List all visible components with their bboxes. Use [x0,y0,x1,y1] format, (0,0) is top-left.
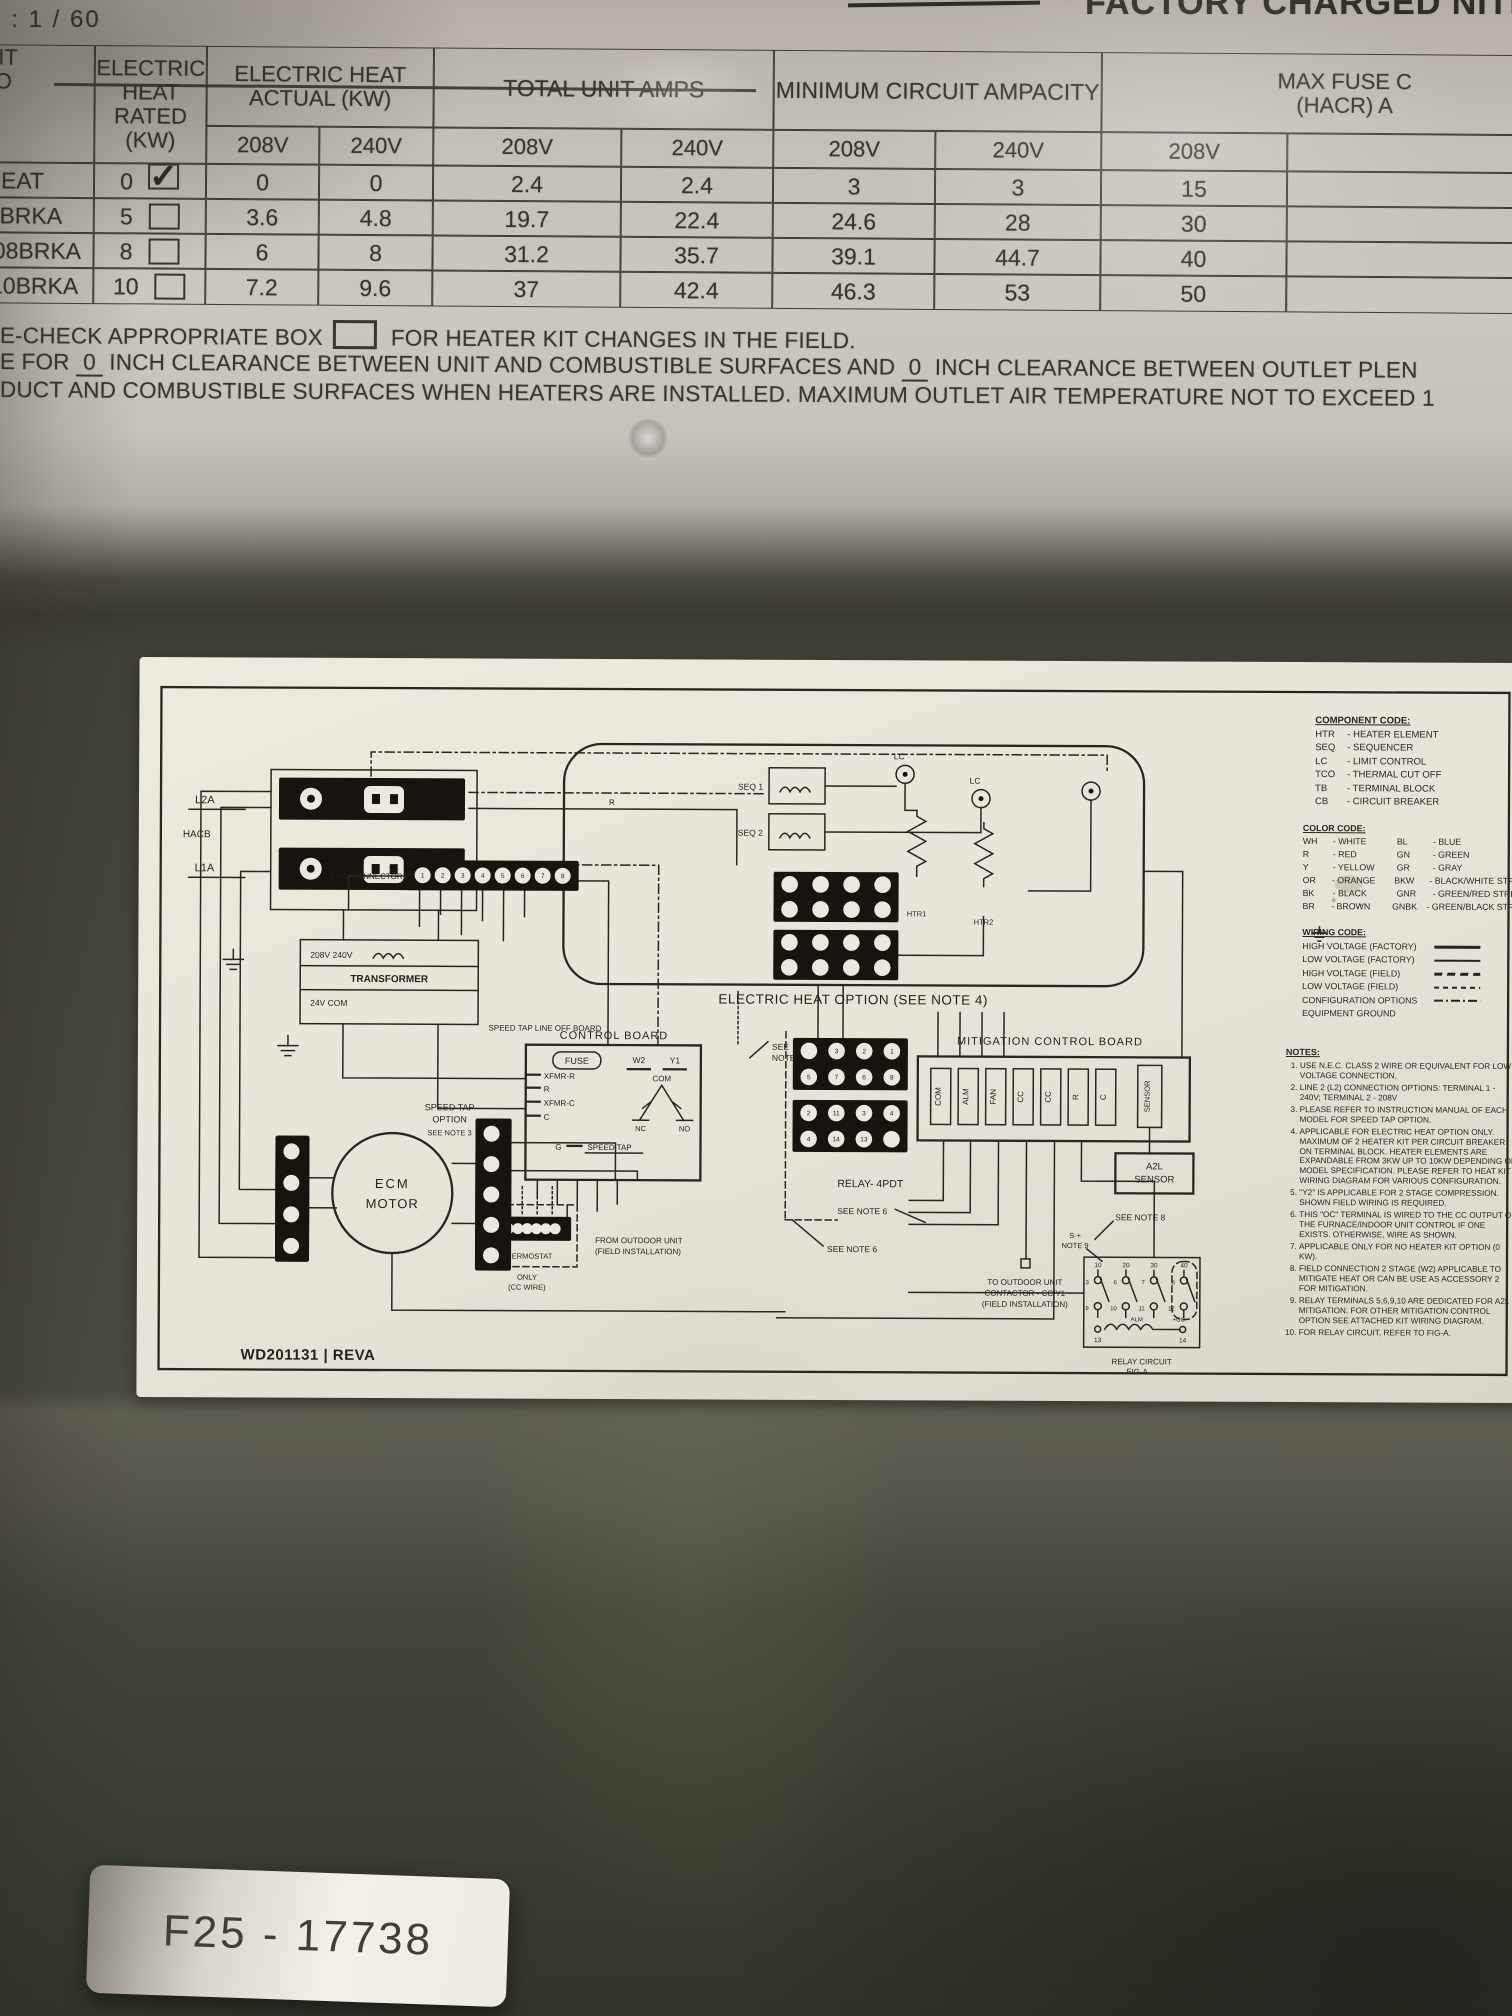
component-code-item: TCO- THERMAL CUT OFF [1315,768,1512,782]
svg-text:FAN: FAN [989,1089,998,1105]
relay-circuit-fig-a: 13 14 ALM +CC RELAY CIRCUIT FIG-A [1083,1257,1200,1377]
svg-text:LC: LC [894,751,905,761]
component-code-item: TB- TERMINAL BLOCK [1315,782,1512,796]
table-cell: 19.7 [433,200,621,236]
color-code-item: Y- YELLOWGR- GRAY [1303,861,1512,875]
component-code-item: HTR- HEATER ELEMENT [1315,728,1512,742]
heat-terminal-block-a [773,872,898,923]
table-cell: 10 [93,268,205,305]
table-cell: 31.2 [432,235,620,271]
color-code-item: BR- BROWNGNBK- GREEN/BLACK STRIPE [1303,900,1512,914]
svg-text:208V 240V: 208V 240V [310,950,352,960]
color-code-legend: COLOR CODE: WH- WHITEBL- BLUER- REDGN- G… [1303,822,1512,914]
svg-text:NOTE 9: NOTE 9 [1061,1241,1088,1250]
svg-text:6: 6 [521,873,525,880]
svg-text:SEE NOTE 8: SEE NOTE 8 [1115,1212,1165,1222]
table-cell: EC HEAT [0,162,94,198]
note-item: USE N.E.C. CLASS 2 WIRE OR EQUIVALENT FO… [1300,1061,1512,1082]
svg-text:SEE NOTE 3: SEE NOTE 3 [427,1128,471,1137]
svg-text:11: 11 [833,1110,840,1117]
svg-text:24V COM: 24V COM [310,998,347,1008]
table-cell: 22.4 [621,202,773,238]
svg-text:8: 8 [1172,1280,1176,1286]
check-box-instruction: E-CHECK APPROPRIATE BOXFOR HEATER KIT CH… [0,318,856,354]
table-cell [1287,171,1512,208]
svg-text:SENSOR: SENSOR [1143,1080,1152,1112]
svg-text:ONLY: ONLY [517,1273,537,1282]
table-cell: A505BRKA [0,197,94,233]
svg-text:6: 6 [862,1074,866,1081]
svg-text:SEQ 1: SEQ 1 [738,782,763,792]
svg-text:4: 4 [890,1111,894,1118]
sticker-code: F25 - 17738 [162,1906,434,1965]
checkbox-unchecked[interactable] [148,238,179,264]
table-cell: 0✓ [94,163,206,199]
svg-text:CONTACTOR - CC/Y1: CONTACTOR - CC/Y1 [985,1289,1066,1298]
svg-text:SEQ 2: SEQ 2 [738,828,763,838]
svg-text:13: 13 [860,1136,868,1143]
note-item: "Y2" IS APPLICABLE FOR 2 STAGE COMPRESSI… [1299,1188,1512,1209]
svg-text:TO OUTDOOR UNIT: TO OUTDOOR UNIT [987,1278,1062,1287]
subheader-total-208v: 208V [433,127,621,166]
table-cell: 2.4 [433,165,621,201]
subheader-fuse-240v [1287,133,1512,173]
wiring-code-legend: WIRING CODE: HIGH VOLTAGE (FACTORY)LOW V… [1302,926,1512,1021]
svg-text:7: 7 [835,1074,839,1081]
motor-strip-right [475,1118,512,1270]
table-cell: 8 [318,235,432,271]
field-checkbox[interactable] [333,320,377,349]
svg-text:2: 2 [441,873,445,880]
svg-text:R: R [544,1085,550,1094]
svg-text:ALM: ALM [961,1088,970,1105]
wiring-code-item: HIGH VOLTAGE (FIELD) [1302,967,1512,981]
table-cell: 5 [94,198,206,234]
table-cell: 35.7 [620,237,772,273]
table-cell: 15 [1101,170,1287,206]
table-cell: 40 [1100,240,1286,276]
svg-text:TRANSFORMER: TRANSFORMER [350,974,429,985]
note-item: APPLICABLE FOR ELECTRIC HEAT OPTION ONLY… [1299,1127,1512,1187]
svg-text:COM: COM [934,1087,943,1106]
svg-text:R: R [1071,1094,1080,1100]
svg-text:SPEED TAP: SPEED TAP [425,1102,475,1112]
svg-text:W2: W2 [632,1055,645,1065]
svg-text:OPTION: OPTION [432,1114,467,1124]
svg-text:6: 6 [1114,1280,1118,1286]
table-cell: RAS08BRKA [0,232,94,268]
svg-text:4: 4 [807,1136,811,1143]
table-cell: 42.4 [620,272,772,309]
note-item: PLEASE REFER TO INSTRUCTION MANUAL OF EA… [1300,1105,1512,1126]
color-code-item: R- REDGN- GREEN [1303,848,1512,862]
table-cell: 24.6 [773,203,935,239]
table-cell [1286,276,1512,314]
component-code-item: CB- CIRCUIT BREAKER [1315,795,1512,809]
svg-text:FROM OUTDOOR UNIT: FROM OUTDOOR UNIT [595,1236,683,1245]
fig-a-contacts: 1039206103071140812 [1085,1262,1195,1317]
transformer: 208V 240V TRANSFORMER 24V COM [300,940,478,1025]
table-cell: 0 [206,164,319,200]
svg-text:10: 10 [1110,1306,1117,1312]
control-board: CONTROL BOARD FUSE W2 Y1 COM NC NO XFMR-… [525,1030,701,1212]
svg-text:FIG-A: FIG-A [1126,1367,1148,1376]
phase-frequency-marker: Z : 1 / 60 [0,6,101,34]
table-cell: RA510BRKA [0,267,93,304]
relay-block-b: 2113441413 [792,1100,907,1153]
factory-charge-marker: FACTORY CHARGED NITROGEN [1085,0,1512,23]
svg-text:7: 7 [541,873,545,880]
component-code-item: LC- LIMIT CONTROL [1315,755,1512,769]
header-kit-line2: EL NO [0,69,12,93]
note-item: FOR RELAY CIRCUIT, REFER TO FIG-A. [1299,1328,1512,1339]
svg-text:30: 30 [1150,1262,1158,1269]
table-cell: 50 [1100,275,1286,312]
table-cell: 8 [93,233,205,269]
svg-text:2: 2 [862,1048,866,1055]
color-code-item: BK- BLACKGNR- GREEN/RED STRIPE [1303,887,1512,901]
mitigation-terminals: COMALMFANCCCCRCSENSOR [931,1064,1162,1127]
table-cell: 46.3 [772,273,934,310]
table-cell: 53 [934,274,1100,311]
inventory-sticker: F25 - 17738 [86,1865,510,2008]
svg-text:MITIGATION CONTROL BOARD: MITIGATION CONTROL BOARD [957,1036,1143,1049]
svg-text:SEE NOTE 6: SEE NOTE 6 [827,1244,877,1254]
svg-text:L1A: L1A [195,862,215,874]
lpw-connector-label: LPW CONNECTOR [332,872,403,881]
notes-legend: NOTES: USE N.E.C. CLASS 2 WIRE OR EQUIVA… [1285,1048,1512,1342]
svg-text:A2L: A2L [1146,1161,1163,1172]
svg-text:1: 1 [890,1049,894,1056]
diagram-part-number: WD201131 | REVA [241,1346,376,1364]
wiring-code-item: CONFIGURATION OPTIONS [1302,994,1512,1008]
component-code-legend: COMPONENT CODE: HTR- HEATER ELEMENTSEQ- … [1315,714,1512,809]
svg-text:COM: COM [652,1074,671,1083]
svg-text:S-+: S-+ [1069,1231,1082,1240]
svg-text:7: 7 [1142,1280,1146,1286]
svg-text:L2A: L2A [195,794,215,806]
header-rated-line1: ELECTRIC [96,56,205,81]
table-cell: 30 [1101,205,1287,241]
see-note-7: SEE [772,1042,789,1052]
wiring-code-item: EQUIPMENT GROUND [1302,1007,1512,1021]
table-cell: 28 [935,204,1101,240]
svg-text:G: G [555,1143,561,1152]
svg-text:+CC: +CC [1173,1317,1186,1323]
svg-text:C: C [1099,1094,1108,1100]
wiring-diagram-label: L2A HACB L1A [136,657,1512,1403]
checkbox-unchecked[interactable] [155,274,186,300]
header-max-fuse: MAX FUSE C (HACR) A [1101,52,1512,135]
table-cell: 3 [935,169,1101,205]
svg-text:NO: NO [679,1124,690,1133]
table-cell [1286,241,1512,278]
svg-text:HTR1: HTR1 [907,909,927,918]
svg-text:XFMR-C: XFMR-C [544,1099,575,1108]
svg-text:11: 11 [1139,1306,1146,1312]
header-rated-kw: ELECTRIC HEAT RATED (KW) [94,45,207,164]
svg-text:CC: CC [1044,1091,1053,1103]
svg-text:9: 9 [1085,1306,1089,1312]
svg-text:8: 8 [890,1075,894,1082]
checkbox-checked[interactable]: ✓ [148,163,179,189]
svg-text:HACB: HACB [183,829,211,840]
header-rated-line3: (KW) [125,128,175,152]
svg-text:MOTOR: MOTOR [366,1196,419,1211]
table-cell: 3.6 [206,199,319,235]
svg-text:5: 5 [501,873,505,880]
svg-text:ELECTRIC HEAT OPTION (SEE NOTE: ELECTRIC HEAT OPTION (SEE NOTE 4) [718,992,988,1008]
svg-text:20: 20 [1122,1262,1130,1269]
svg-text:3: 3 [1086,1280,1090,1286]
svg-text:3: 3 [461,873,465,880]
table-cell [1287,206,1512,243]
note-item: RELAY TERMINALS 5,6,9,10 ARE DEDICATED F… [1299,1296,1512,1326]
relay-4pdt-label: RELAY- 4PDT [837,1178,904,1190]
svg-text:ALM: ALM [1131,1317,1143,1323]
header-kit-model: ER KIT EL NO [0,44,95,163]
header-actual-kw: ELECTRIC HEAT ACTUAL (KW) [206,46,434,128]
subheader-total-240v: 240V [621,129,773,168]
header-rated-line2: HEAT RATED [95,80,205,129]
svg-text:(FIELD INSTALLATION): (FIELD INSTALLATION) [982,1300,1068,1309]
outdoor-unit-connection: TO OUTDOOR UNIT CONTACTOR - CC/Y1 (FIELD… [982,1259,1068,1309]
svg-text:12: 12 [1168,1306,1175,1312]
ground-symbol-2 [278,1036,298,1056]
wiring-code-item: LOW VOLTAGE (FIELD) [1302,980,1512,994]
svg-text:XFMR-R: XFMR-R [544,1072,575,1081]
heater-kit-ratings-table: ER KIT EL NO ELECTRIC HEAT RATED (KW) EL… [0,44,1512,314]
svg-text:4: 4 [481,873,485,880]
subheader-actual-240v: 240V [319,127,433,166]
subheader-fuse-208v: 208V [1101,132,1287,171]
svg-text:3: 3 [862,1110,866,1117]
svg-text:R: R [609,798,615,807]
svg-text:SEE NOTE 6: SEE NOTE 6 [837,1206,887,1216]
header-mca: MINIMUM CIRCUIT AMPACITY [773,50,1102,132]
color-code-item: OR- ORANGEBKW- BLACK/WHITE STRIPE [1303,874,1512,888]
svg-text:NC: NC [635,1124,646,1133]
svg-text:CC: CC [1016,1091,1025,1103]
table-cell: 37 [432,270,620,307]
table-cell: 0 [319,165,433,201]
svg-text:8: 8 [561,873,565,880]
svg-text:13: 13 [1094,1337,1102,1344]
table-cell: 6 [205,234,318,270]
svg-text:3: 3 [835,1048,839,1055]
svg-text:(FIELD INSTALLATION): (FIELD INSTALLATION) [595,1247,681,1256]
subheader-actual-208v: 208V [206,126,319,165]
note-item: APPLICABLE ONLY FOR NO HEATER KIT OPTION… [1299,1242,1512,1263]
checkbox-unchecked[interactable] [149,203,180,229]
svg-text:C: C [544,1113,550,1122]
color-code-item: WH- WHITEBL- BLUE [1303,835,1512,849]
svg-text:(CC WIRE): (CC WIRE) [508,1283,546,1292]
note-item: THIS "OC" TERMINAL IS WIRED TO THE CC OU… [1299,1210,1512,1240]
svg-text:5: 5 [807,1074,811,1081]
svg-text:40: 40 [1180,1263,1188,1270]
clearance-value-1: 0 [76,349,103,376]
table-cell: 39.1 [772,238,934,274]
subheader-mca-240v: 240V [935,131,1101,170]
header-kit-line1: ER KIT [0,45,18,69]
svg-text:14: 14 [1179,1338,1187,1345]
svg-text:FUSE: FUSE [565,1056,589,1066]
lpw-connector-strip: 12345678 [407,860,579,891]
relay-block-a: 3215768 [793,1038,908,1091]
svg-text:SENSOR: SENSOR [1134,1174,1174,1185]
svg-text:2: 2 [807,1110,811,1117]
table-cell: 7.2 [205,269,318,306]
table-cell: 4.8 [319,200,433,236]
subheader-mca-208v: 208V [773,130,935,169]
heater-element-1 [908,810,926,876]
note-item: LINE 2 (L2) CONNECTION OPTIONS: TERMINAL… [1300,1083,1512,1104]
component-code-item: SEQ- SEQUENCER [1315,741,1512,755]
note-item: FIELD CONNECTION 2 STAGE (W2) APPLICABLE… [1299,1264,1512,1294]
header-total-amps: TOTAL UNIT AMPS [433,47,774,129]
svg-text:ECM: ECM [375,1176,410,1191]
wiring-code-item: LOW VOLTAGE (FACTORY) [1302,953,1512,967]
svg-text:Y1: Y1 [670,1055,681,1065]
svg-text:SPEED TAP: SPEED TAP [587,1143,631,1152]
motor-strip-left [275,1136,310,1262]
svg-text:10: 10 [1094,1262,1102,1269]
table-cell: 44.7 [934,239,1100,275]
clearance-value-2: 0 [902,355,929,382]
table-cell: 3 [773,168,935,204]
table-cell: 2.4 [621,167,773,203]
svg-text:CONTROL BOARD: CONTROL BOARD [560,1030,669,1042]
svg-text:1: 1 [421,873,425,880]
svg-text:14: 14 [833,1136,841,1143]
heat-terminal-block-b [773,930,898,981]
svg-text:LC: LC [970,776,981,786]
svg-text:RELAY CIRCUIT: RELAY CIRCUIT [1112,1357,1172,1366]
table-cell: 9.6 [318,270,432,307]
